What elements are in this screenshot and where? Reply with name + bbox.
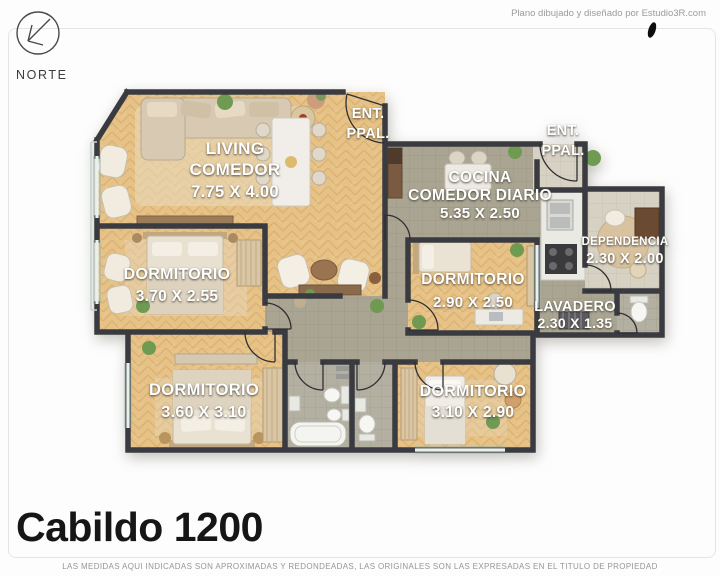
toilet (324, 386, 349, 404)
page: NORTE Plano dibujado y diseñado por Estu… (0, 0, 720, 576)
cocina-label: COMEDOR DIARIO (408, 187, 552, 204)
living-label: COMEDOR (190, 160, 281, 179)
dresser (175, 354, 257, 364)
dormitorio4-label: DORMITORIO (420, 383, 527, 400)
kitchen-counter (541, 192, 585, 280)
entrance1-label: PPAL. (346, 126, 389, 142)
bathtub (290, 422, 346, 446)
toilet (630, 296, 648, 322)
entrance1-label: ENT. (352, 106, 385, 122)
cocina-dims: 5.35 X 2.50 (440, 205, 520, 222)
north-arrow-icon (10, 6, 66, 62)
coffee-table (311, 260, 337, 280)
dormitorio4-dims: 3.10 X 2.90 (432, 404, 515, 421)
shelf (336, 374, 349, 379)
entrance2-label: PPAL. (541, 143, 584, 159)
computer (489, 312, 503, 321)
round-chair (494, 363, 516, 385)
toilet (359, 415, 375, 441)
plant (508, 145, 522, 159)
sink (289, 396, 300, 411)
wardrobe (263, 368, 283, 442)
bed (413, 242, 471, 274)
studio-logo-mark (645, 20, 659, 40)
dormitorio3-label: DORMITORIO (149, 381, 259, 399)
floor-plan: LIVING COMEDOR 7.75 X 4.00 ENT. PPAL. EN… (85, 78, 670, 480)
sink (355, 398, 366, 412)
dormitorio1-label: DORMITORIO (124, 266, 231, 283)
disclaimer: LAS MEDIDAS AQUI INDICADAS SON APROXIMAD… (0, 562, 720, 571)
page-title: Cabildo 1200 (16, 504, 263, 551)
living-dims: 7.75 X 4.00 (191, 183, 279, 201)
oven (388, 148, 402, 164)
plant (217, 94, 233, 110)
dormitorio3-dims: 3.60 X 3.10 (161, 404, 246, 421)
compass-label: NORTE (16, 68, 80, 82)
cocina-label: COCINA (449, 169, 512, 186)
plant (370, 299, 384, 313)
floor-vase (369, 272, 381, 284)
dormitorio1-dims: 3.70 X 2.55 (136, 288, 219, 305)
dormitorio2-dims: 2.90 X 2.50 (433, 294, 513, 311)
plant (412, 315, 426, 329)
compass: NORTE (10, 6, 80, 82)
dependencia-label: DEPENDENCIA (581, 236, 668, 248)
credit-line: Plano dibujado y diseñado por Estudio3R.… (511, 8, 706, 19)
entrance2-label: ENT. (547, 123, 580, 139)
lavadero-dims: 2.30 X 1.35 (538, 315, 613, 331)
dormitorio2-label: DORMITORIO (421, 271, 524, 288)
chair (605, 210, 625, 226)
shelf (336, 366, 349, 371)
living-label: LIVING (206, 139, 264, 158)
desk (635, 208, 659, 238)
lavadero-label: LAVADERO (534, 299, 616, 315)
dependencia-dims: 2.30 X 2.00 (586, 251, 663, 267)
bidet (327, 409, 349, 421)
plant (142, 341, 156, 355)
plant (510, 243, 524, 257)
